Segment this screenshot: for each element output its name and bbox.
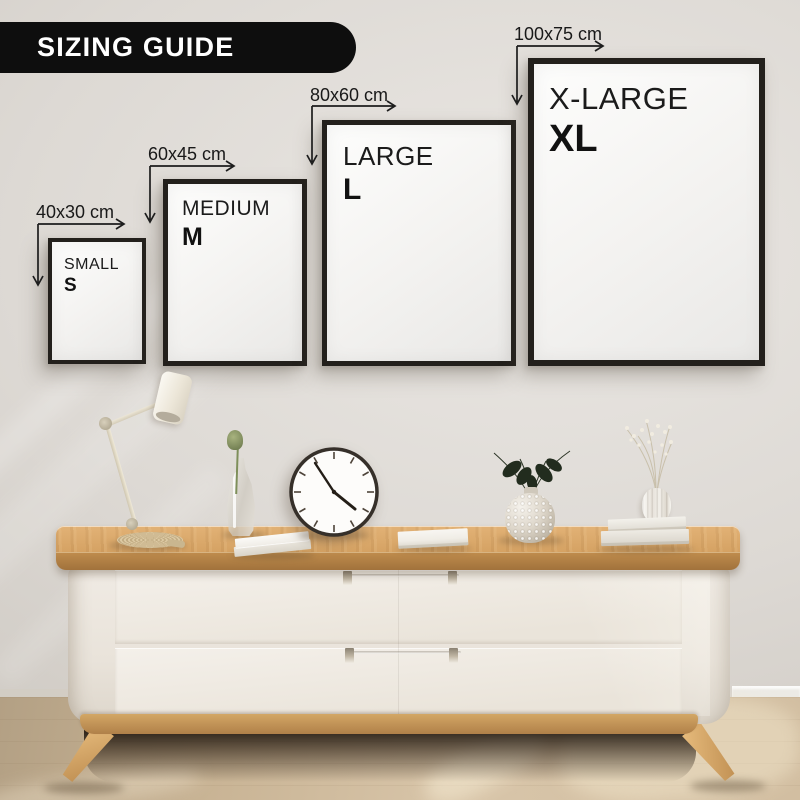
stacked-book-bottom [601,529,689,546]
frame-large-abbr: L [343,174,511,206]
frame-small-paper: SMALL S [52,242,142,360]
banner-title: SIZING GUIDE [0,32,234,63]
dimension-label-small: 40x30 cm [36,202,114,223]
frame-small: SMALL S [48,238,146,364]
frame-xlarge-paper: X-LARGE XL [534,64,759,360]
frame-large-paper: LARGE L [327,125,511,361]
lamp-elbow-joint [99,417,112,430]
sideboard-floor-shadow [84,728,696,782]
frame-large: LARGE L [322,120,516,366]
frame-medium-label: MEDIUM [182,198,302,220]
drawer-handle [448,571,457,585]
cabinet-light-sheen [520,568,710,716]
bubble-vase-arrangement [486,443,578,545]
dimension-label-medium: 60x45 cm [148,144,226,165]
lamp-head-opening [155,410,181,424]
dimension-label-large: 80x60 cm [310,85,388,106]
drawer-handle-groove [343,574,459,577]
books-and-vase [598,412,694,552]
dried-flower-sprigs [618,412,676,494]
sizing-guide-banner: SIZING GUIDE [0,22,356,73]
frame-small-label: SMALL [64,257,142,274]
wall-clock [288,446,380,538]
flower-bud [227,430,243,450]
frame-xlarge-abbr: XL [549,120,759,160]
lamp-head [152,370,193,426]
leg-shadow [44,782,124,794]
desk-lamp [95,368,210,558]
lamp-base-joint [126,518,138,530]
drawer-seam [398,570,399,716]
lamp-lower-arm [105,424,138,525]
dimension-label-xlarge: 100x75 cm [514,24,602,45]
frame-large-label: LARGE [343,143,511,170]
frame-xlarge-label: X-LARGE [549,83,759,116]
stack-shadow [598,545,694,553]
leg-shadow [690,780,766,792]
bud-vase [225,430,265,538]
frame-medium-paper: MEDIUM M [168,184,302,361]
sideboard-bottom-trim [80,714,698,734]
glass-bottle [227,458,255,536]
frame-xlarge: X-LARGE XL [528,58,765,366]
drawer-handle [449,648,458,663]
drawer-handle [345,648,354,663]
drawer-handle-groove [345,651,461,654]
drawer-handle [343,571,352,585]
frame-medium-abbr: M [182,224,302,250]
clock-center [332,490,336,494]
frame-small-abbr: S [64,276,142,296]
sizing-guide-image: SIZING GUIDE 40x30 cm 60x45 cm 80x60 cm … [0,0,800,800]
hobnail-glass-vase [505,493,555,543]
frame-medium: MEDIUM M [163,179,307,366]
